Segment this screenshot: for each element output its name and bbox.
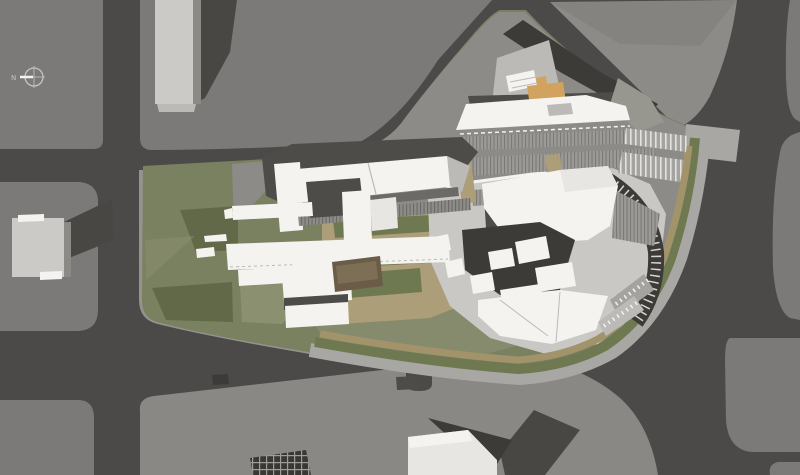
city-block-bottom-left — [0, 400, 94, 475]
cluster-vertical-slab — [342, 190, 372, 242]
west-white-building-roof — [12, 218, 64, 277]
west-building-side — [64, 222, 71, 277]
city-block-bottom-right-corner — [770, 462, 800, 475]
small-structure-2 — [396, 376, 421, 390]
north-label: N — [11, 74, 16, 82]
west-building-rooftop-tab-1 — [18, 214, 44, 222]
cluster-south-building — [285, 302, 349, 328]
site-plan-canvas: Aerial architectural site plan rendering — [0, 0, 800, 475]
tall-building-side — [193, 0, 201, 104]
roof-notch — [547, 103, 573, 116]
west-building-rooftop-tab-2 — [40, 271, 62, 280]
small-structure-1 — [212, 374, 229, 385]
tall-building-roof — [155, 0, 193, 104]
city-block-bottom-right — [725, 338, 800, 452]
cluster-east-block — [370, 197, 398, 231]
tall-building-base — [157, 104, 196, 112]
site-plan-rendering: Aerial architectural site plan rendering — [0, 0, 800, 475]
